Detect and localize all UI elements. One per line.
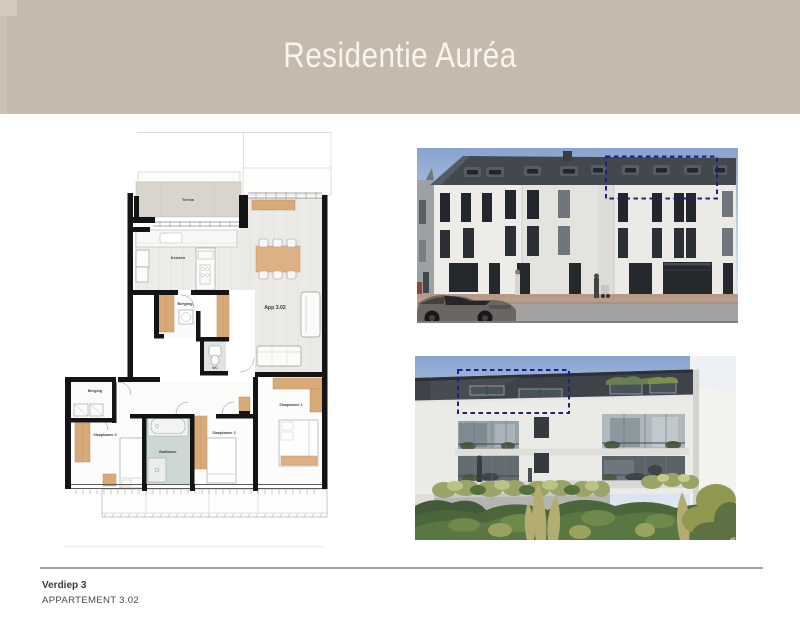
svg-text:Badkamer: Badkamer — [159, 450, 177, 454]
svg-text:Keuken: Keuken — [171, 255, 186, 260]
svg-text:App 3.02: App 3.02 — [264, 305, 286, 311]
svg-text:Slaapkamer 2: Slaapkamer 2 — [212, 431, 235, 435]
svg-text:Slaapkamer 3: Slaapkamer 3 — [93, 433, 116, 437]
svg-text:Slaapkamer 1: Slaapkamer 1 — [279, 403, 302, 407]
svg-text:WC: WC — [212, 366, 218, 370]
svg-text:Berging: Berging — [88, 389, 103, 393]
svg-text:Berging: Berging — [177, 301, 193, 306]
svg-text:Terras: Terras — [182, 197, 195, 202]
